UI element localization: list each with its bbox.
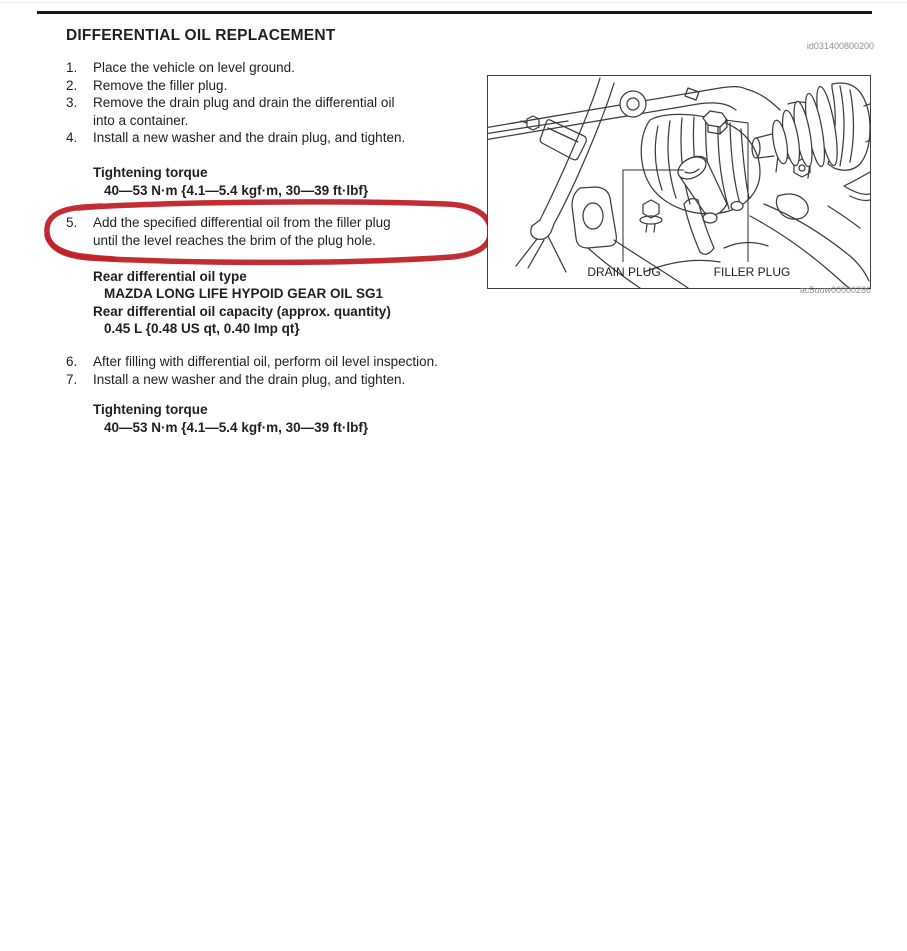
differential-diagram: DRAIN PLUG FILLER PLUG [487,75,871,289]
step-item-highlighted: 5. Add the specified differential oil fr… [66,214,506,249]
oil-capacity-value: 0.45 L {0.48 US qt, 0.40 Imp qt} [93,320,391,337]
page-title: DIFFERENTIAL OIL REPLACEMENT [66,27,335,45]
step-item: 4. Install a new washer and the drain pl… [66,129,506,147]
oil-type-label: Rear differential oil type [93,268,391,285]
tightening-torque-spec: Tightening torque 40—53 N·m {4.1—5.4 kgf… [93,401,368,436]
oil-capacity-label: Rear differential oil capacity (approx. … [93,303,391,320]
step-item: 3. Remove the drain plug and drain the d… [66,94,506,129]
manual-page: DIFFERENTIAL OIL REPLACEMENT id031400800… [0,0,907,951]
window-top-edge [0,2,907,3]
step-text: After filling with differential oil, per… [93,353,438,371]
step-text: Place the vehicle on level ground. [93,59,295,77]
step-item: 7. Install a new washer and the drain pl… [66,371,516,389]
step-text: Remove the drain plug and drain the diff… [93,94,394,129]
step-item: 6. After filling with differential oil, … [66,353,516,371]
step-text: Remove the filler plug. [93,77,227,95]
step-number: 3. [66,94,93,129]
diagram-line-art [488,76,870,288]
step-text: Add the specified differential oil from … [93,214,391,249]
tightening-torque-label: Tightening torque [93,164,368,182]
section-divider-rule [37,11,872,14]
step-number: 6. [66,353,93,371]
step-number: 1. [66,59,93,77]
drain-plug-label: DRAIN PLUG [587,265,660,279]
step-item: 1. Place the vehicle on level ground. [66,59,506,77]
tightening-torque-spec: Tightening torque 40—53 N·m {4.1—5.4 kgf… [93,164,368,199]
step-number: 7. [66,371,93,389]
procedure-steps-1-4: 1. Place the vehicle on level ground. 2.… [66,59,506,147]
oil-type-value: MAZDA LONG LIFE HYPOID GEAR OIL SG1 [93,285,391,302]
step-number: 5. [66,214,93,249]
tightening-torque-value: 40—53 N·m {4.1—5.4 kgf·m, 30—39 ft·lbf} [93,419,368,437]
step-number: 2. [66,77,93,95]
tightening-torque-value: 40—53 N·m {4.1—5.4 kgf·m, 30—39 ft·lbf} [93,182,368,200]
filler-plug-label: FILLER PLUG [714,265,791,279]
step-text: Install a new washer and the drain plug,… [93,371,405,389]
oil-specification: Rear differential oil type MAZDA LONG LI… [93,268,391,337]
procedure-steps-6-7: 6. After filling with differential oil, … [66,353,516,388]
step-number: 4. [66,129,93,147]
step-text: Install a new washer and the drain plug,… [93,129,405,147]
tightening-torque-label: Tightening torque [93,401,368,419]
figure-id-code: ac5uuw00000286 [800,285,871,295]
step-item: 2. Remove the filler plug. [66,77,506,95]
doc-id-code: id031400800200 [807,41,874,51]
